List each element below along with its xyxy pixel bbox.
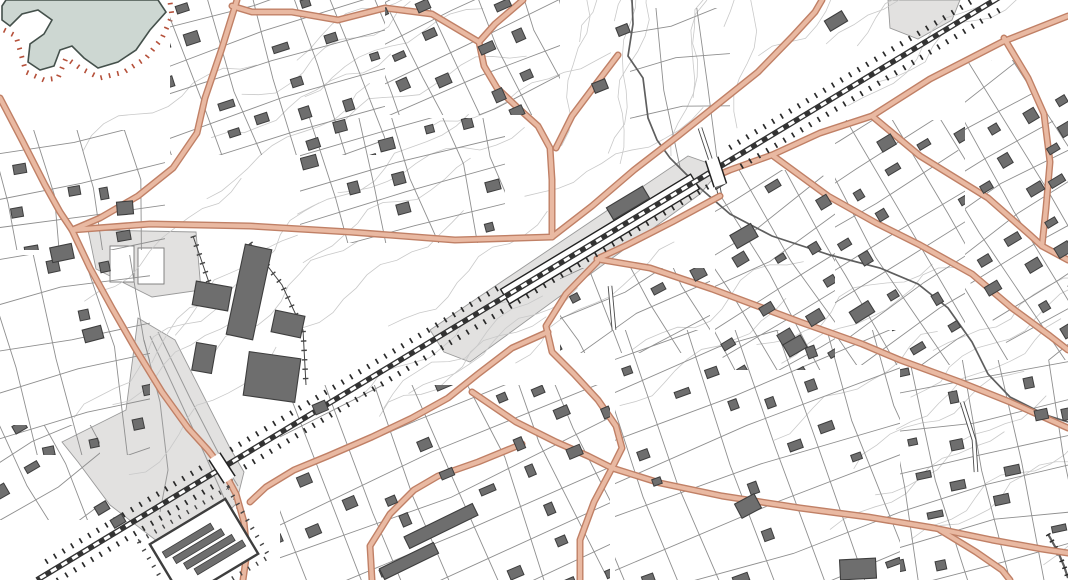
house bbox=[553, 405, 570, 419]
parcel-boundary bbox=[198, 0, 281, 202]
house bbox=[887, 290, 899, 301]
house bbox=[305, 524, 321, 538]
house bbox=[885, 163, 901, 176]
parcel-boundary bbox=[516, 289, 640, 562]
contour-line bbox=[614, 0, 660, 21]
house bbox=[838, 238, 852, 250]
house bbox=[917, 139, 931, 151]
house bbox=[396, 202, 411, 215]
house bbox=[183, 31, 200, 46]
house bbox=[162, 76, 175, 89]
house bbox=[641, 573, 655, 580]
house bbox=[12, 420, 28, 434]
house bbox=[399, 513, 412, 527]
house bbox=[300, 0, 311, 8]
house bbox=[988, 123, 1001, 135]
house bbox=[761, 528, 774, 541]
gray-areas-layer bbox=[62, 0, 960, 545]
lake-layer bbox=[2, 0, 172, 80]
house bbox=[435, 73, 452, 88]
house bbox=[855, 421, 871, 432]
map-canvas[interactable] bbox=[0, 0, 1068, 580]
building bbox=[616, 24, 630, 37]
house bbox=[0, 456, 9, 468]
house bbox=[485, 179, 501, 192]
contour-line bbox=[691, 0, 726, 98]
parcel-boundary bbox=[263, 494, 724, 580]
house bbox=[901, 337, 913, 347]
house bbox=[1023, 107, 1039, 123]
house bbox=[1017, 283, 1030, 296]
house bbox=[773, 296, 788, 310]
house bbox=[707, 444, 722, 459]
house bbox=[24, 245, 39, 254]
parcel-boundary bbox=[240, 88, 538, 172]
house bbox=[0, 483, 10, 501]
house bbox=[34, 540, 49, 554]
house bbox=[80, 379, 97, 393]
house bbox=[461, 117, 473, 130]
house bbox=[343, 98, 355, 112]
house bbox=[637, 449, 650, 461]
house bbox=[853, 189, 865, 201]
house bbox=[916, 470, 932, 480]
house bbox=[1025, 257, 1043, 273]
building bbox=[824, 11, 847, 32]
house bbox=[1054, 298, 1068, 311]
house bbox=[425, 124, 435, 134]
building bbox=[82, 325, 104, 342]
house bbox=[512, 28, 526, 43]
parcel-region bbox=[313, 0, 627, 191]
house bbox=[417, 437, 433, 451]
contour-line bbox=[724, 0, 758, 27]
house bbox=[708, 472, 725, 487]
house bbox=[531, 385, 545, 397]
house bbox=[555, 535, 568, 547]
building bbox=[226, 244, 272, 340]
house bbox=[42, 446, 55, 457]
house bbox=[781, 193, 793, 204]
house bbox=[685, 395, 698, 407]
house bbox=[255, 180, 268, 191]
house bbox=[228, 128, 241, 138]
house bbox=[13, 163, 27, 174]
contour-line bbox=[211, 54, 391, 138]
house bbox=[651, 282, 666, 295]
house bbox=[741, 125, 759, 142]
house bbox=[874, 359, 890, 372]
house bbox=[514, 354, 528, 369]
parcel-boundary bbox=[0, 220, 51, 517]
house bbox=[631, 389, 647, 402]
road bbox=[370, 444, 522, 580]
house bbox=[802, 86, 819, 102]
house bbox=[1004, 464, 1021, 476]
parcel-boundary bbox=[857, 428, 1068, 484]
parcel-boundary bbox=[788, 239, 931, 580]
building bbox=[50, 243, 75, 262]
house bbox=[954, 127, 970, 143]
house bbox=[46, 403, 62, 417]
house bbox=[728, 399, 739, 411]
parcel-boundary bbox=[601, 47, 751, 79]
house bbox=[1061, 406, 1068, 420]
parcel-boundary bbox=[737, 61, 909, 170]
house bbox=[571, 193, 588, 206]
house bbox=[290, 76, 303, 88]
house bbox=[10, 207, 23, 218]
house bbox=[496, 392, 508, 403]
house bbox=[254, 112, 269, 124]
yard-lot bbox=[138, 248, 164, 284]
house bbox=[422, 28, 437, 41]
parcel-boundary bbox=[0, 421, 69, 548]
house bbox=[89, 438, 99, 448]
contour-line bbox=[209, 241, 358, 366]
house bbox=[473, 123, 488, 136]
house bbox=[818, 420, 835, 433]
house bbox=[1030, 561, 1047, 572]
house bbox=[175, 3, 189, 14]
house bbox=[99, 261, 110, 273]
house bbox=[1004, 232, 1021, 247]
house bbox=[306, 138, 321, 151]
building bbox=[94, 501, 110, 515]
parcel-boundary bbox=[684, 208, 752, 325]
contour-line bbox=[620, 298, 786, 406]
house bbox=[392, 51, 406, 62]
embankment-ticks bbox=[737, 10, 999, 169]
parcel-boundary bbox=[346, 0, 427, 154]
house bbox=[625, 248, 641, 261]
parcel-boundary bbox=[863, 455, 1068, 523]
house bbox=[924, 97, 939, 110]
house bbox=[267, 534, 283, 547]
house bbox=[1005, 520, 1022, 533]
lake bbox=[2, 0, 166, 70]
house bbox=[1055, 95, 1068, 107]
house bbox=[409, 254, 419, 263]
house bbox=[765, 179, 781, 193]
building bbox=[192, 342, 217, 373]
house bbox=[392, 172, 407, 186]
house bbox=[519, 171, 531, 184]
house bbox=[950, 439, 964, 451]
house bbox=[950, 480, 966, 491]
house bbox=[333, 119, 348, 133]
house bbox=[1060, 322, 1068, 339]
house bbox=[908, 438, 918, 446]
house bbox=[1026, 181, 1044, 197]
house bbox=[747, 481, 759, 495]
house bbox=[823, 274, 837, 287]
house bbox=[574, 79, 586, 92]
parcel-boundary bbox=[1004, 260, 1068, 345]
house bbox=[479, 484, 496, 496]
house bbox=[787, 439, 803, 452]
north-east-wedge bbox=[888, 0, 960, 39]
house bbox=[927, 510, 943, 519]
parcel-boundary bbox=[482, 304, 605, 577]
house bbox=[732, 251, 749, 267]
house bbox=[775, 101, 789, 116]
house bbox=[1039, 301, 1051, 313]
house bbox=[260, 505, 274, 516]
house bbox=[515, 358, 531, 369]
house bbox=[690, 264, 707, 281]
house bbox=[484, 222, 494, 232]
house bbox=[673, 241, 688, 256]
parcel-boundary bbox=[0, 229, 6, 526]
house bbox=[765, 397, 777, 409]
house bbox=[151, 158, 161, 168]
house bbox=[863, 385, 875, 394]
house bbox=[977, 254, 992, 268]
building bbox=[840, 558, 877, 580]
building bbox=[271, 310, 305, 338]
house bbox=[886, 557, 902, 568]
house bbox=[926, 46, 937, 56]
house bbox=[674, 387, 690, 398]
house bbox=[78, 309, 90, 321]
parcel-boundary bbox=[499, 0, 578, 109]
house bbox=[276, 200, 288, 214]
house bbox=[116, 230, 131, 242]
parcel-boundary bbox=[687, 206, 847, 308]
house bbox=[828, 348, 840, 359]
house bbox=[447, 83, 458, 95]
house bbox=[851, 452, 863, 462]
house bbox=[935, 560, 947, 571]
house bbox=[689, 531, 701, 544]
house bbox=[763, 378, 775, 391]
parcel-region bbox=[714, 32, 1068, 454]
house bbox=[544, 502, 556, 516]
contour-line bbox=[608, 0, 636, 154]
house bbox=[889, 316, 902, 331]
house bbox=[562, 46, 578, 60]
parcel-boundary bbox=[748, 118, 940, 435]
house bbox=[920, 558, 934, 569]
house bbox=[775, 253, 786, 263]
house bbox=[641, 429, 655, 442]
parcel-boundary bbox=[307, 108, 361, 290]
house bbox=[369, 52, 379, 61]
parcel-boundary bbox=[573, 264, 646, 384]
house bbox=[986, 230, 998, 241]
house bbox=[997, 152, 1013, 168]
house bbox=[132, 418, 144, 430]
house bbox=[420, 109, 432, 118]
map-root bbox=[0, 0, 1068, 580]
house bbox=[378, 137, 395, 152]
house bbox=[850, 56, 864, 68]
house bbox=[47, 108, 62, 121]
house bbox=[805, 379, 818, 392]
house bbox=[396, 77, 411, 92]
house bbox=[520, 69, 534, 81]
contour-line bbox=[426, 53, 611, 130]
house bbox=[68, 186, 81, 197]
house bbox=[233, 169, 249, 184]
parcel-boundary bbox=[420, 0, 493, 144]
house bbox=[732, 572, 750, 580]
house bbox=[808, 241, 821, 254]
house bbox=[583, 366, 599, 381]
parcel-boundary bbox=[618, 551, 1021, 580]
house bbox=[279, 242, 296, 257]
house bbox=[296, 473, 312, 487]
house bbox=[534, 101, 550, 112]
house bbox=[1034, 408, 1049, 420]
parcel-boundary bbox=[970, 203, 1068, 285]
house bbox=[948, 391, 959, 404]
house bbox=[704, 366, 719, 378]
house bbox=[347, 181, 360, 195]
house bbox=[99, 187, 109, 200]
house bbox=[507, 565, 524, 580]
house bbox=[1051, 524, 1066, 533]
house bbox=[0, 234, 11, 246]
house bbox=[298, 106, 312, 120]
house bbox=[903, 335, 916, 347]
house bbox=[695, 219, 714, 236]
house bbox=[24, 461, 40, 474]
house bbox=[1057, 120, 1068, 138]
house bbox=[591, 33, 607, 45]
house bbox=[993, 493, 1010, 505]
parcel-boundary bbox=[0, 79, 189, 125]
house bbox=[300, 154, 318, 170]
house bbox=[721, 338, 736, 351]
parcel-boundary bbox=[666, 286, 802, 580]
house bbox=[516, 148, 530, 157]
house bbox=[342, 495, 358, 510]
house bbox=[1023, 377, 1034, 389]
house bbox=[937, 102, 950, 114]
building bbox=[116, 201, 133, 215]
house bbox=[342, 300, 359, 312]
house bbox=[966, 353, 980, 367]
house bbox=[525, 464, 537, 477]
house bbox=[243, 470, 262, 487]
house bbox=[154, 39, 171, 52]
house bbox=[243, 189, 255, 202]
parcel-boundary bbox=[315, 376, 436, 580]
house bbox=[218, 99, 235, 111]
house bbox=[974, 26, 987, 39]
house bbox=[992, 248, 1007, 263]
house bbox=[622, 366, 633, 376]
parcel-boundary bbox=[885, 61, 1022, 149]
parcel-boundary bbox=[425, 74, 488, 259]
house bbox=[788, 268, 801, 280]
parcel-boundary bbox=[0, 445, 27, 574]
building bbox=[243, 352, 301, 403]
house bbox=[272, 42, 289, 54]
house bbox=[593, 332, 606, 344]
house bbox=[143, 112, 160, 125]
